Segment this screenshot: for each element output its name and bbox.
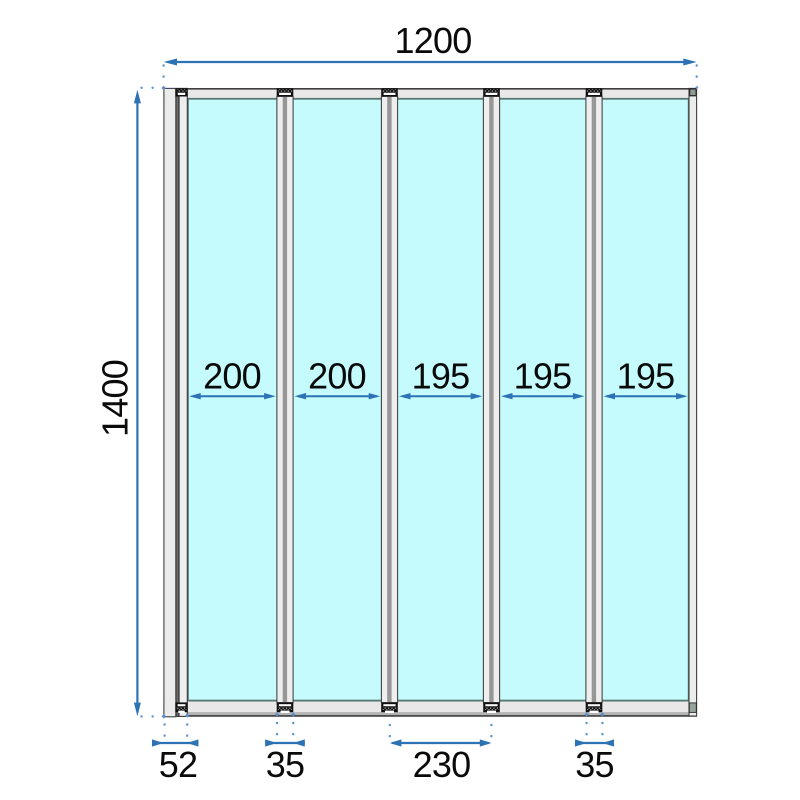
svg-text:200: 200: [203, 356, 261, 397]
svg-text:35: 35: [266, 744, 304, 785]
svg-text:52: 52: [159, 744, 197, 785]
svg-text:1200: 1200: [395, 20, 472, 61]
svg-text:195: 195: [617, 356, 675, 397]
svg-text:195: 195: [412, 356, 470, 397]
svg-text:200: 200: [308, 356, 366, 397]
svg-text:230: 230: [413, 744, 471, 785]
svg-text:1400: 1400: [95, 360, 136, 437]
svg-text:195: 195: [514, 356, 572, 397]
svg-text:35: 35: [575, 744, 613, 785]
